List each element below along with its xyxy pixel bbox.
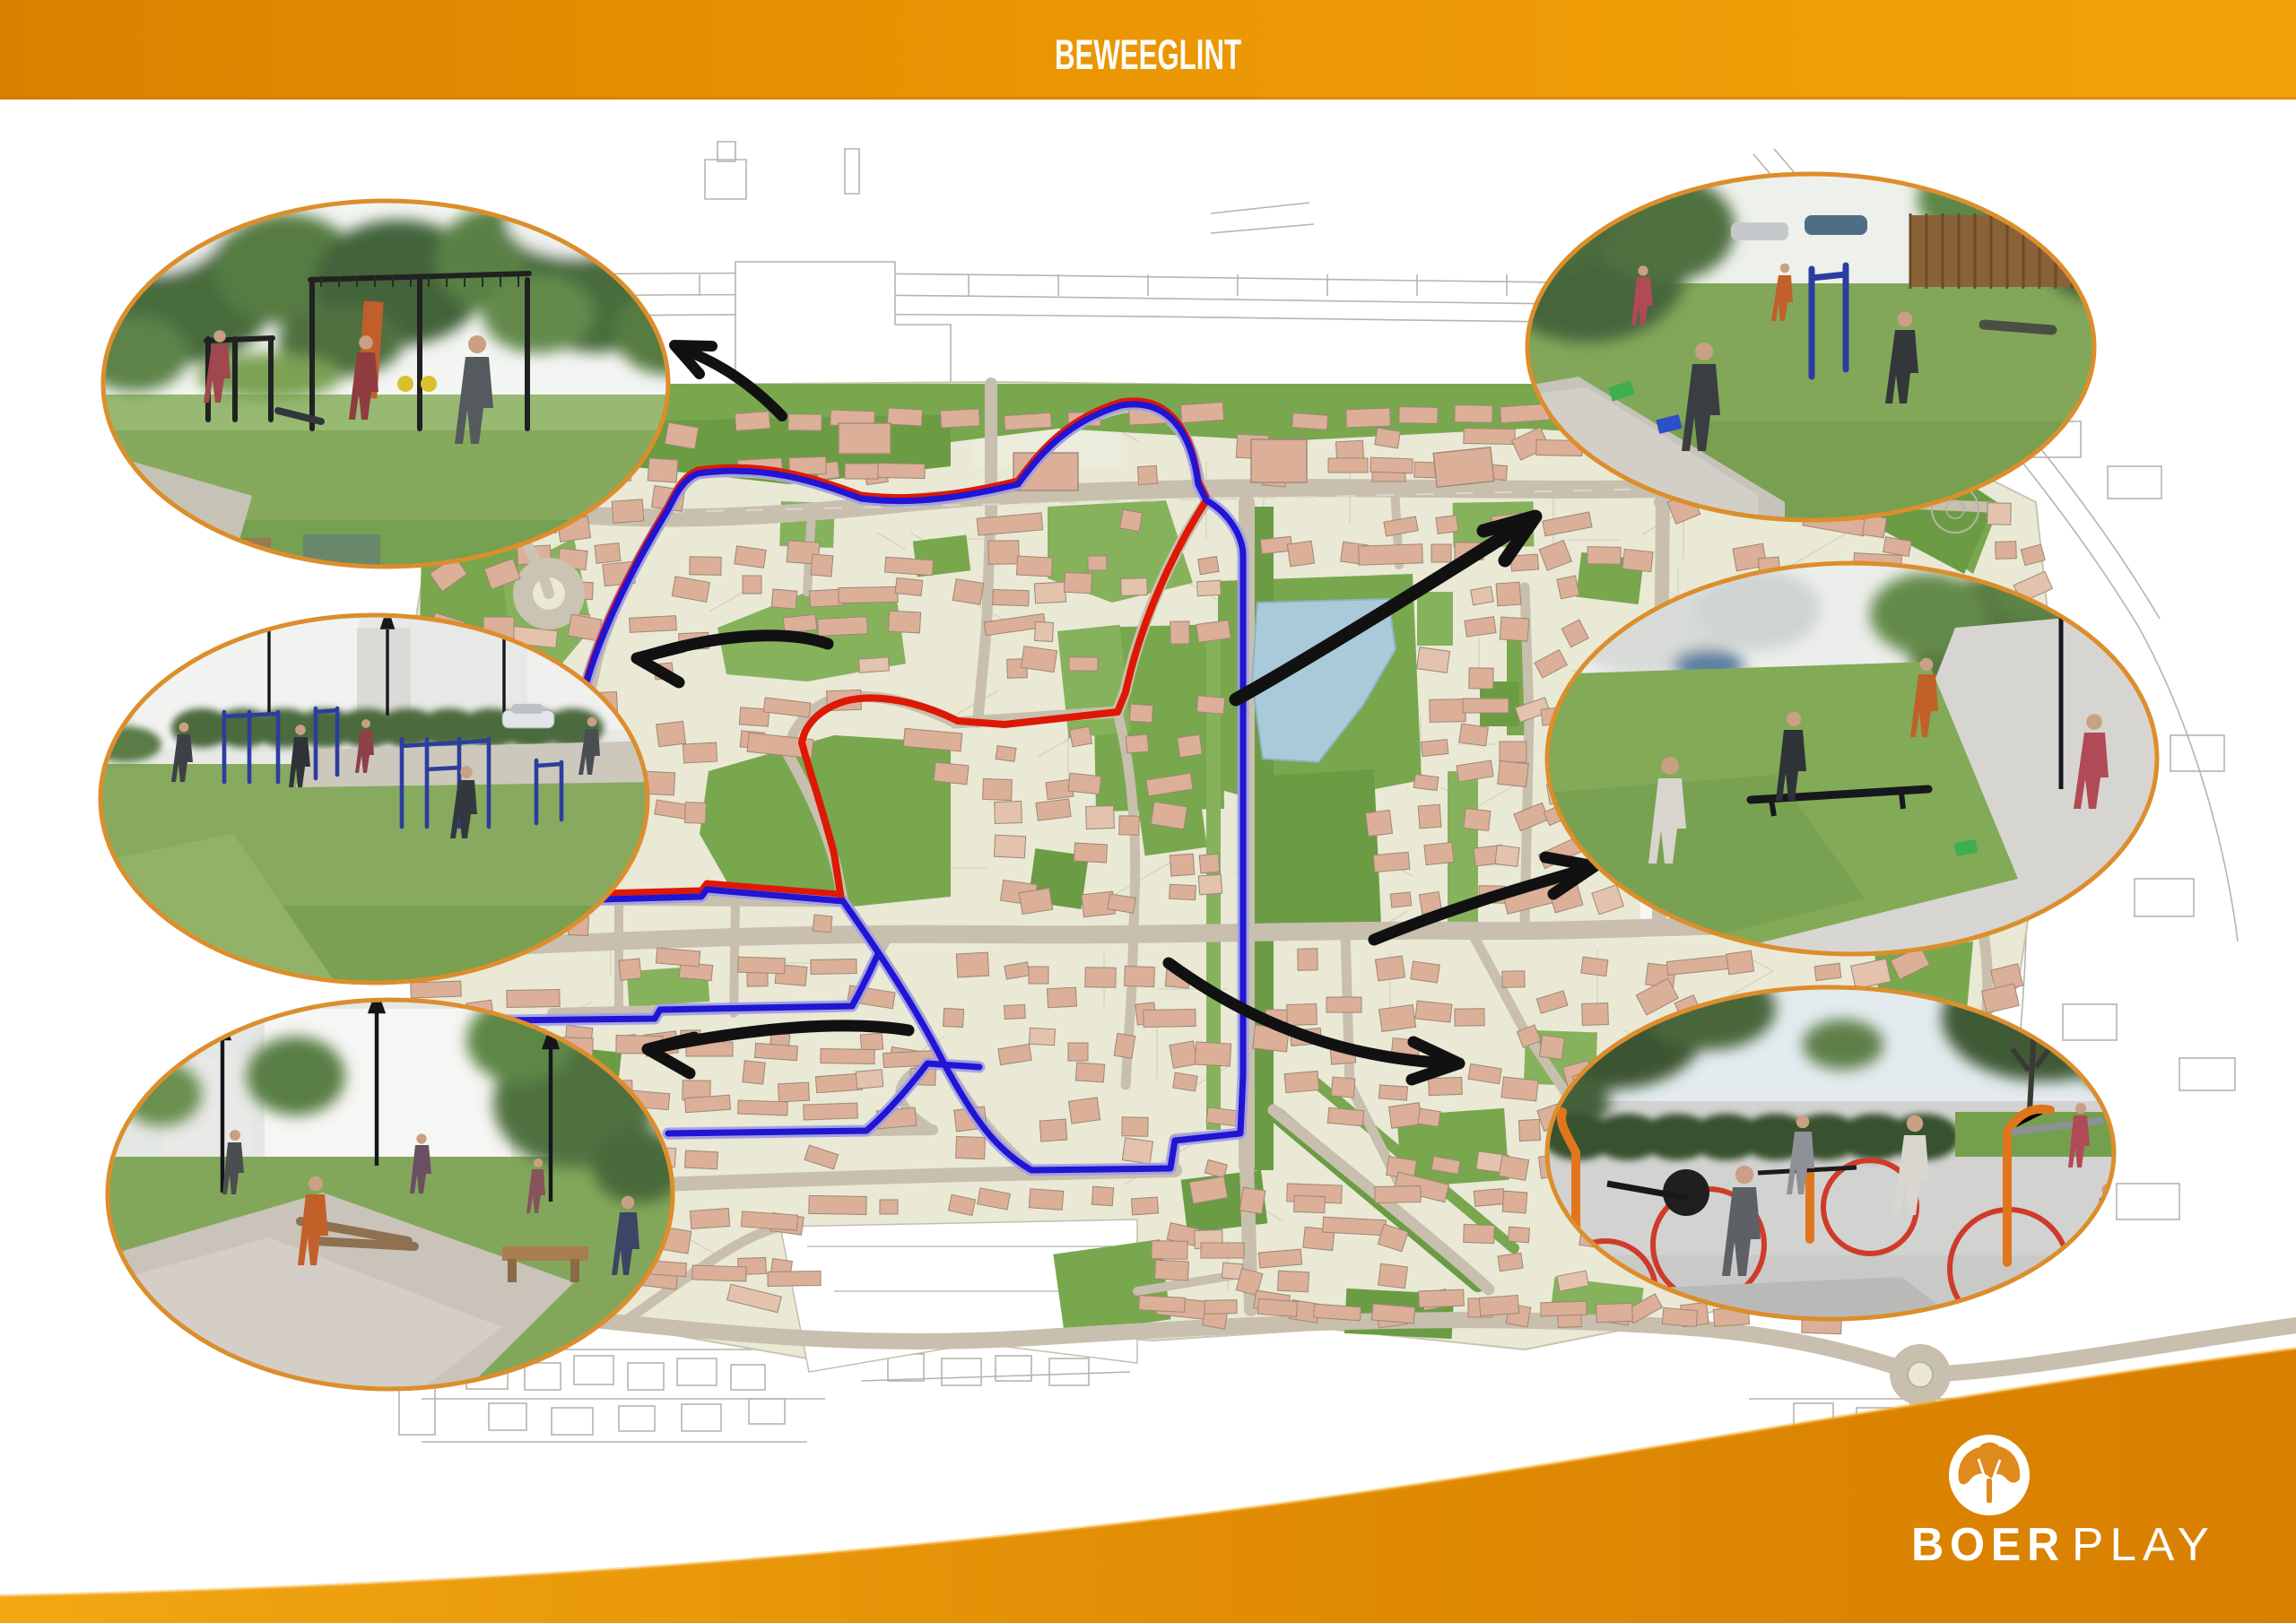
svg-text:BOER: BOER — [1911, 1519, 2066, 1571]
svg-text:BEWEEGLINT: BEWEEGLINT — [1055, 30, 1241, 78]
svg-text:PLAY: PLAY — [2072, 1519, 2215, 1571]
